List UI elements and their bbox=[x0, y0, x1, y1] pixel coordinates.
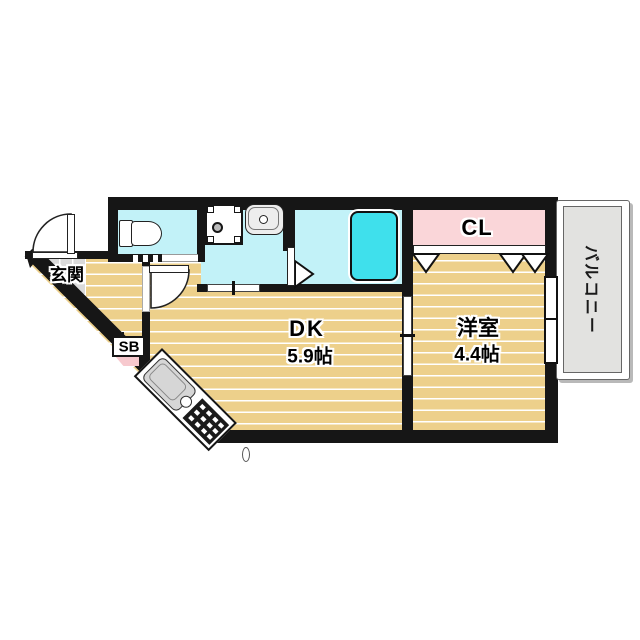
balcony-label: バルコニー bbox=[581, 245, 605, 335]
toilet-door-dashed-icon bbox=[128, 255, 162, 262]
wall-toilet-washroom bbox=[197, 204, 205, 262]
entry-door-leaf-icon bbox=[67, 214, 75, 254]
faucet-icon bbox=[259, 215, 268, 224]
closet-label: CL bbox=[461, 215, 492, 241]
wall-washroom-bathroom bbox=[283, 197, 295, 251]
balcony-window-icon bbox=[544, 276, 558, 364]
washbasin-icon bbox=[245, 204, 284, 235]
closet-door-track bbox=[413, 245, 546, 254]
bathtub-icon bbox=[350, 211, 398, 281]
washroom-sliding-door-tick bbox=[232, 281, 235, 295]
toilet-icon bbox=[131, 221, 162, 246]
western-room-size-label: 4.4帖 bbox=[454, 340, 499, 367]
toilet-door bbox=[162, 254, 198, 262]
entrance-label: 玄関 bbox=[50, 261, 84, 286]
western-room-sliding-door-tick bbox=[400, 334, 415, 337]
bathroom-door-leaf-icon bbox=[287, 247, 295, 286]
dk-size-label: 5.9帖 bbox=[287, 342, 332, 369]
dk-label: DK bbox=[289, 316, 325, 342]
bathtub-margin bbox=[348, 209, 400, 283]
exterior-mask bbox=[20, 196, 106, 249]
wall-bottom bbox=[202, 430, 558, 443]
shoe-box-accent bbox=[115, 356, 139, 366]
pan-corner-icon bbox=[234, 206, 241, 213]
balcony-window-tick bbox=[544, 318, 558, 320]
western-room-label: 洋室 bbox=[457, 312, 499, 342]
washing-machine-pan-icon bbox=[205, 204, 243, 245]
shoe-box-label: SB bbox=[119, 339, 140, 356]
entry-door-swing-icon bbox=[33, 214, 71, 252]
shoe-box-tick bbox=[122, 332, 124, 338]
wall-top bbox=[108, 197, 558, 210]
pan-corner-icon bbox=[234, 236, 241, 243]
toilet-tank-lid-icon bbox=[242, 447, 250, 462]
drain-icon bbox=[212, 222, 223, 233]
pan-corner-icon bbox=[207, 236, 214, 243]
pan-corner-icon bbox=[207, 206, 214, 213]
floor-plan: 玄関 DK 5.9帖 洋室 4.4帖 CL SB バルコニー bbox=[0, 0, 640, 640]
dk-door-leaf-icon bbox=[149, 265, 189, 273]
